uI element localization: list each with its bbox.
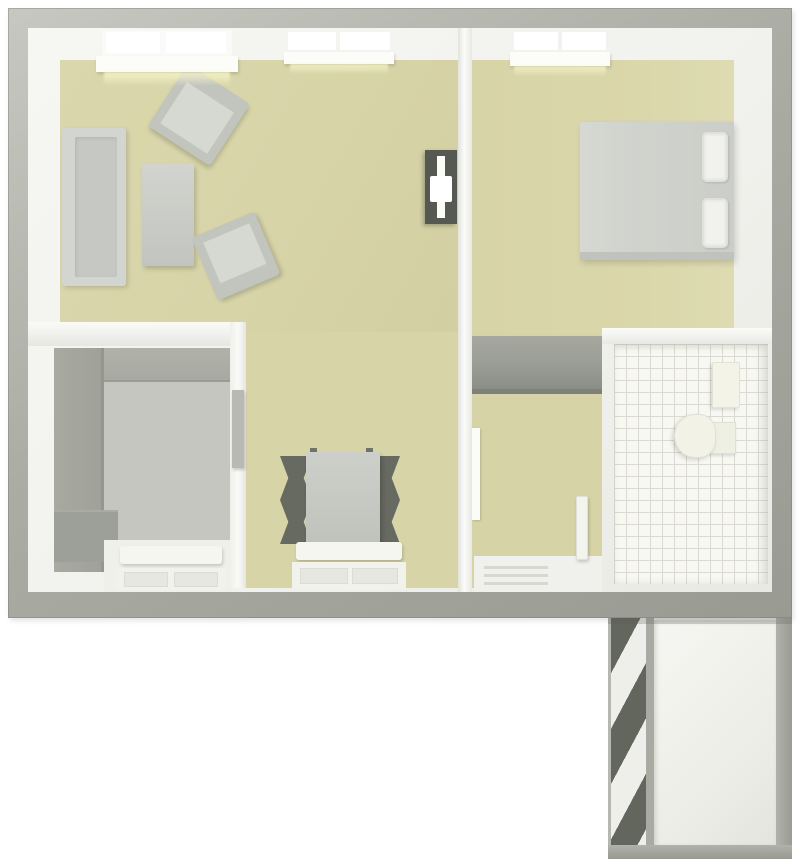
wardrobe (472, 336, 602, 394)
stair-landing-floor (654, 620, 776, 845)
living-window-pane (166, 32, 226, 53)
staircase-top-shadow (608, 618, 792, 624)
living-window2-sill (284, 52, 394, 64)
partition-wall-bathroom-top (602, 328, 772, 344)
dining-radiator (296, 542, 402, 560)
bathroom-sink (712, 362, 740, 408)
coffee-table (142, 164, 194, 266)
entrance-mat-line (484, 582, 548, 585)
staircase-stripes (608, 618, 646, 859)
bedroom-window-light (514, 66, 606, 76)
entrance-mat-line (484, 574, 548, 577)
staircase-inner-wall (646, 618, 654, 859)
pillow (702, 132, 728, 182)
partition-wall-kitchen-top (28, 322, 246, 346)
tv-panel (430, 176, 452, 202)
bedroom-window-pane (562, 32, 606, 50)
floor-plan-canvas (0, 0, 800, 859)
kitchen-window-pane (174, 572, 218, 587)
living-window-sill (96, 56, 238, 72)
kitchen-window-pane (124, 572, 168, 587)
toilet-bowl (674, 414, 716, 458)
living-window-pane (106, 32, 160, 53)
living-window2-pane (340, 32, 390, 50)
pillow (702, 198, 728, 248)
living-window2-pane (288, 32, 336, 50)
bedroom-window-sill (510, 52, 610, 66)
dining-window-pane (352, 568, 398, 584)
hall-door-leaf (472, 428, 480, 520)
dining-window-pane (300, 568, 348, 584)
kitchen-radiator (120, 546, 222, 564)
staircase-bottom-wall (608, 845, 792, 859)
partition-wall-bathroom-left (600, 344, 614, 588)
partition-wall-central (458, 28, 472, 592)
bathroom-tile-floor (614, 344, 768, 584)
dining-table (306, 452, 380, 548)
kitchen-door-leaf (232, 390, 244, 468)
living-window-light (104, 72, 230, 86)
living-window2-light (290, 64, 388, 74)
sofa-seat (75, 137, 117, 277)
bed-foot-edge (580, 252, 734, 260)
entrance-mat-line (484, 566, 548, 569)
staircase-right-wall (776, 618, 792, 859)
bedroom-window-pane (514, 32, 558, 50)
bathroom-door-leaf (576, 496, 588, 560)
